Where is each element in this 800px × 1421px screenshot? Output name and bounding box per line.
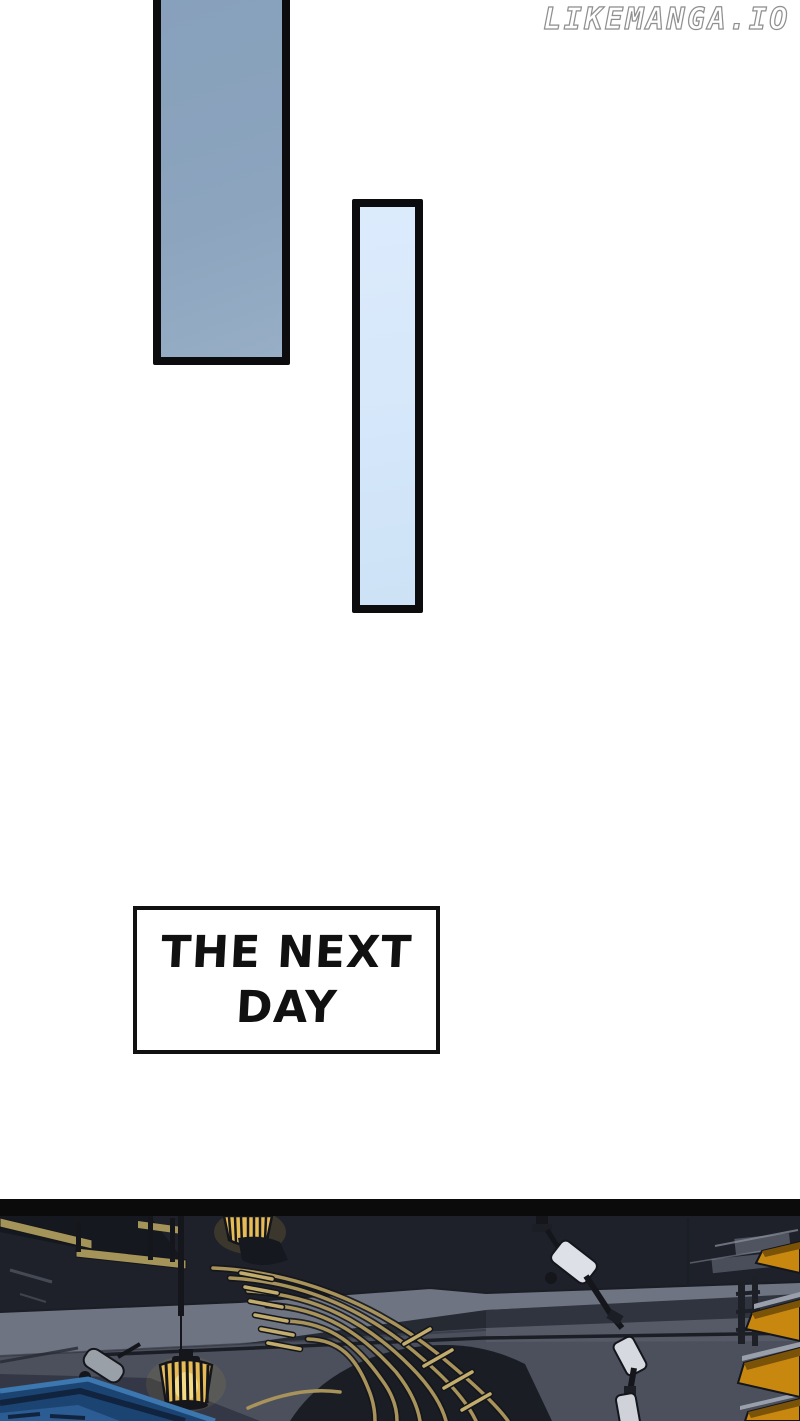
panel-divider-bar [0,1199,800,1216]
caption-box: THE NEXT DAY [133,906,440,1054]
comic-panel-tall [153,0,290,365]
site-watermark: LIKEMANGA.IO [543,2,790,37]
comic-panel-narrow [352,199,423,613]
caption-line-2: DAY [234,980,338,1035]
workshop-scene-art [0,1216,800,1421]
caption-line-1: THE NEXT [160,925,414,980]
manga-page: LIKEMANGA.IO THE NEXT DAY [0,0,800,1421]
workshop-scene [0,1216,800,1421]
